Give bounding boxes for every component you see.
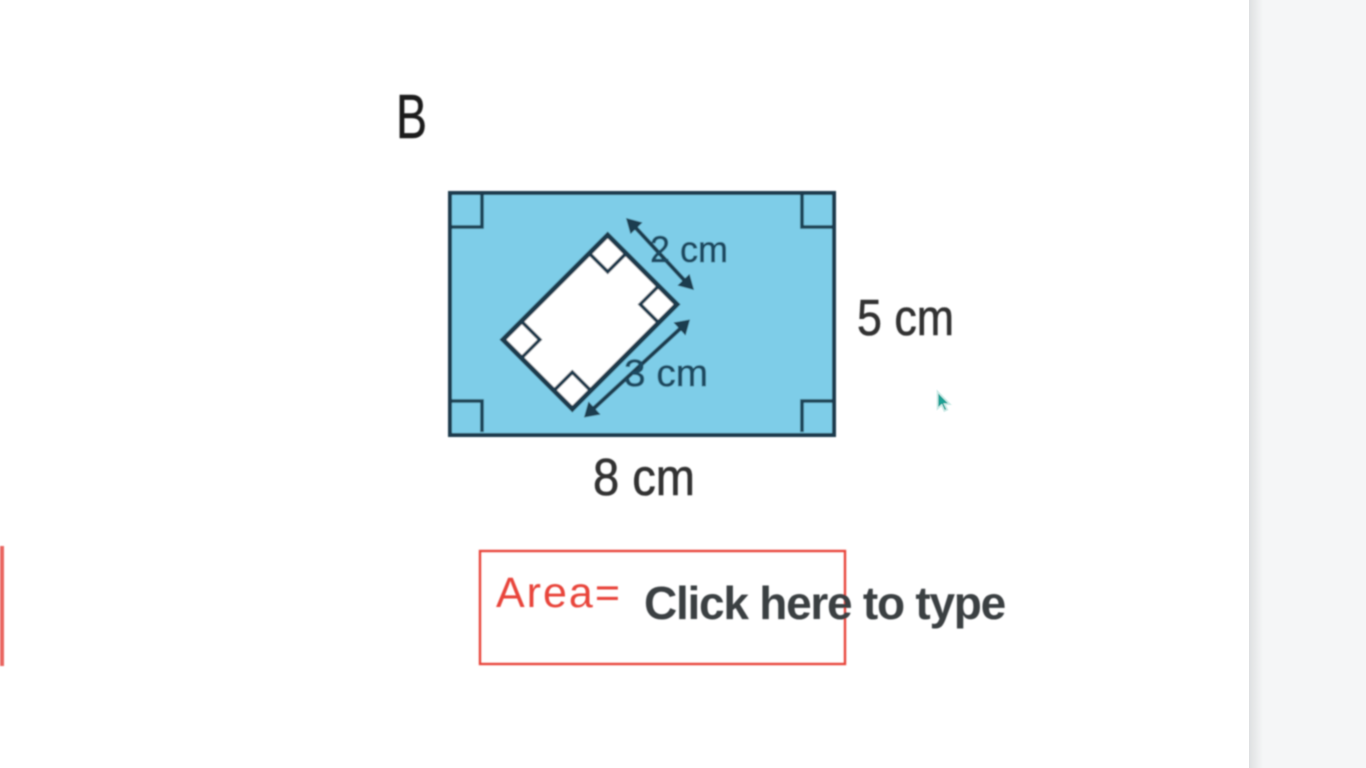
svg-text:Area=: Area= — [496, 569, 622, 617]
svg-text:2 cm: 2 cm — [650, 229, 728, 270]
svg-text:8 cm: 8 cm — [593, 449, 695, 507]
svg-text:3 cm: 3 cm — [624, 353, 708, 395]
svg-text:B: B — [396, 83, 427, 152]
svg-text:5 cm: 5 cm — [857, 289, 954, 346]
svg-text:Click here to type: Click here to type — [644, 577, 1006, 629]
